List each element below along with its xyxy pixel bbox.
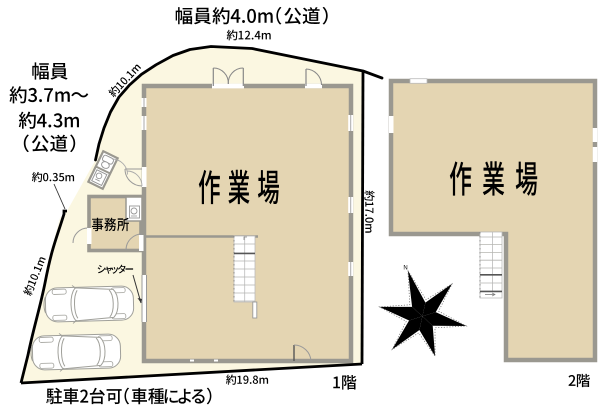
svg-text:N: N — [403, 265, 407, 271]
